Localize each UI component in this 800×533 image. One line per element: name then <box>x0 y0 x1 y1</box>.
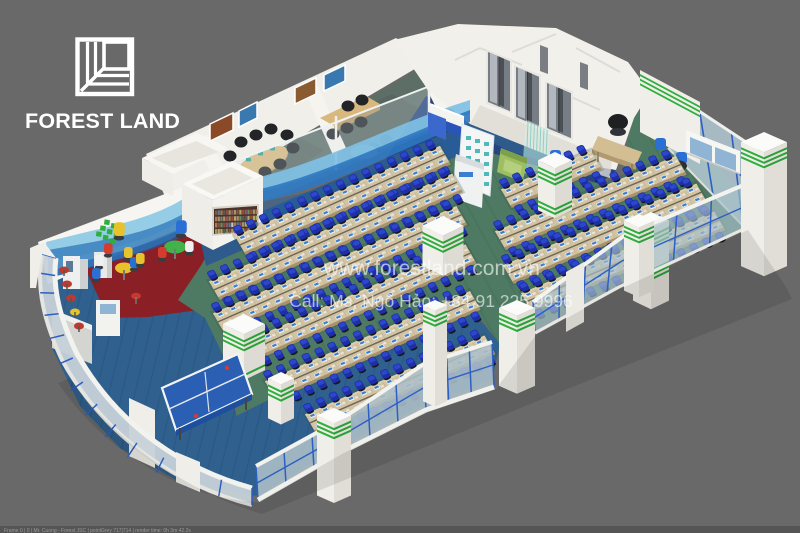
svg-text:Call: Ms. Ngô Hảo: +84 91 225: Call: Ms. Ngô Hảo: +84 91 225 9996 <box>289 291 573 311</box>
svg-text:FOREST LAND: FOREST LAND <box>25 109 180 133</box>
svg-text:Frame 0 | 0 | Mr. Cuong - Fore: Frame 0 | 0 | Mr. Cuong - Forest JSC | p… <box>4 528 191 533</box>
svg-text:www.forestland.com.vn: www.forestland.com.vn <box>323 257 540 280</box>
